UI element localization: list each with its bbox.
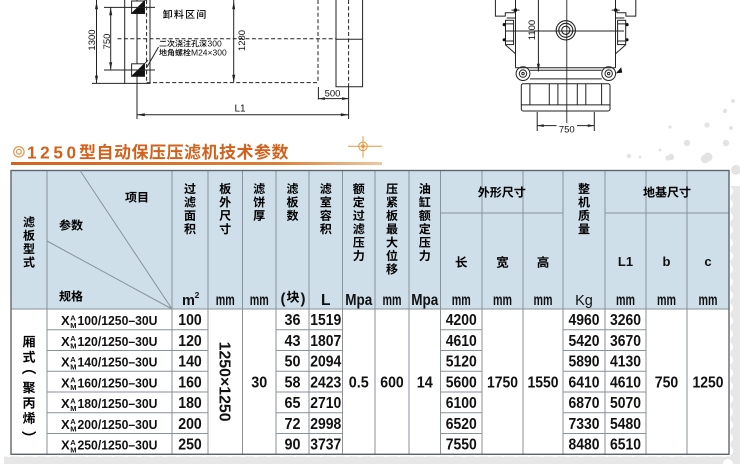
svg-text:36: 36 [285, 312, 301, 329]
svg-text:140/1250–30U: 140/1250–30U [78, 355, 158, 370]
svg-text:M: M [70, 342, 76, 351]
svg-text:5120: 5120 [446, 354, 477, 371]
svg-text:mm: mm [216, 292, 235, 309]
svg-text:90: 90 [285, 437, 301, 454]
svg-text:mm: mm [616, 292, 635, 309]
svg-text:mm: mm [452, 292, 471, 309]
svg-text:L1: L1 [234, 103, 246, 114]
svg-text:5600: 5600 [446, 374, 477, 391]
svg-text:X: X [61, 396, 70, 411]
svg-text:65: 65 [285, 395, 301, 412]
svg-text:1300: 1300 [87, 29, 98, 50]
svg-text:6520: 6520 [446, 416, 477, 433]
svg-text:250: 250 [178, 437, 202, 454]
svg-text:3260: 3260 [610, 312, 641, 329]
svg-text:43: 43 [285, 333, 301, 350]
svg-text:750: 750 [655, 374, 679, 391]
svg-text:4130: 4130 [610, 354, 641, 371]
svg-text:1550: 1550 [528, 374, 559, 391]
svg-text:2: 2 [195, 290, 200, 300]
svg-text:M24×300: M24×300 [191, 48, 227, 58]
svg-text:3670: 3670 [610, 333, 641, 350]
svg-text:L1: L1 [618, 254, 633, 269]
svg-text:200/1250–30U: 200/1250–30U [78, 417, 158, 432]
svg-text:5420: 5420 [569, 333, 600, 350]
svg-text:Mpa: Mpa [411, 292, 438, 309]
svg-text:100: 100 [178, 312, 202, 329]
svg-text:6870: 6870 [569, 395, 600, 412]
svg-text:M: M [70, 362, 76, 371]
svg-text:6410: 6410 [569, 374, 600, 391]
svg-text:120: 120 [178, 333, 202, 350]
svg-text:2998: 2998 [310, 416, 341, 433]
svg-text:M: M [70, 445, 76, 454]
svg-text:500: 500 [325, 88, 341, 99]
svg-text:6100: 6100 [446, 395, 477, 412]
svg-text:mm: mm [657, 292, 676, 309]
svg-text:1807: 1807 [310, 333, 341, 350]
svg-text:160: 160 [178, 374, 202, 391]
svg-text:m: m [182, 293, 195, 309]
svg-text:120/1250–30U: 120/1250–30U [78, 334, 158, 349]
svg-text:L: L [321, 292, 330, 309]
svg-text:1280: 1280 [237, 30, 248, 51]
svg-text:1750: 1750 [487, 374, 518, 391]
svg-text:X: X [61, 313, 70, 328]
svg-text:160/1250–30U: 160/1250–30U [78, 375, 158, 390]
svg-text:M: M [70, 425, 76, 434]
svg-text:30: 30 [251, 374, 267, 391]
svg-text:250/1250–30U: 250/1250–30U [78, 438, 158, 453]
svg-text:1100: 1100 [527, 20, 538, 40]
svg-text:5070: 5070 [610, 395, 641, 412]
svg-text:7330: 7330 [569, 416, 600, 433]
svg-text:X: X [61, 355, 70, 370]
svg-text:600: 600 [380, 374, 404, 391]
svg-text:6510: 6510 [610, 437, 641, 454]
svg-text:140: 140 [178, 354, 202, 371]
svg-text:4960: 4960 [569, 312, 600, 329]
svg-text:(: ( [281, 291, 286, 308]
svg-text:M: M [70, 383, 76, 392]
svg-text:1250×1250: 1250×1250 [216, 342, 233, 422]
svg-text:180: 180 [178, 395, 202, 412]
svg-text:58: 58 [285, 374, 301, 391]
svg-text:0.5: 0.5 [349, 374, 369, 391]
svg-text:750: 750 [559, 124, 575, 135]
svg-text:100/1250–30U: 100/1250–30U [78, 313, 158, 328]
svg-text:mm: mm [699, 292, 718, 309]
svg-text:4200: 4200 [446, 312, 477, 329]
svg-text:1519: 1519 [310, 312, 341, 329]
svg-text:8480: 8480 [569, 437, 600, 454]
svg-text:750: 750 [102, 34, 113, 50]
svg-text:c: c [704, 254, 711, 269]
svg-text:4610: 4610 [446, 333, 477, 350]
svg-text:X: X [61, 438, 70, 453]
svg-text:7550: 7550 [446, 437, 477, 454]
svg-text:5890: 5890 [569, 354, 600, 371]
svg-text:3737: 3737 [310, 437, 341, 454]
svg-text:180/1250–30U: 180/1250–30U [78, 396, 158, 411]
svg-text:X: X [61, 334, 70, 349]
svg-text:X: X [61, 417, 70, 432]
svg-text:): ) [301, 291, 306, 308]
svg-text:1250: 1250 [693, 374, 724, 391]
svg-text:M: M [70, 404, 76, 413]
svg-text:mm: mm [383, 292, 402, 309]
svg-text:200: 200 [178, 416, 202, 433]
svg-text:mm: mm [250, 292, 269, 309]
svg-text:72: 72 [285, 416, 301, 433]
svg-text:mm: mm [493, 292, 512, 309]
svg-text:14: 14 [417, 374, 433, 391]
svg-text:2710: 2710 [310, 395, 341, 412]
svg-text:1250: 1250 [27, 143, 80, 163]
svg-text:M: M [70, 321, 76, 330]
svg-text:b: b [663, 254, 671, 269]
svg-text:2423: 2423 [310, 374, 341, 391]
svg-text:4610: 4610 [610, 374, 641, 391]
svg-text:50: 50 [285, 354, 301, 371]
svg-text:2094: 2094 [310, 354, 341, 371]
svg-text:5480: 5480 [610, 416, 641, 433]
svg-text:mm: mm [534, 292, 553, 309]
svg-text:Kg: Kg [575, 293, 593, 309]
svg-text:X: X [61, 375, 70, 390]
svg-text:Mpa: Mpa [345, 292, 372, 309]
